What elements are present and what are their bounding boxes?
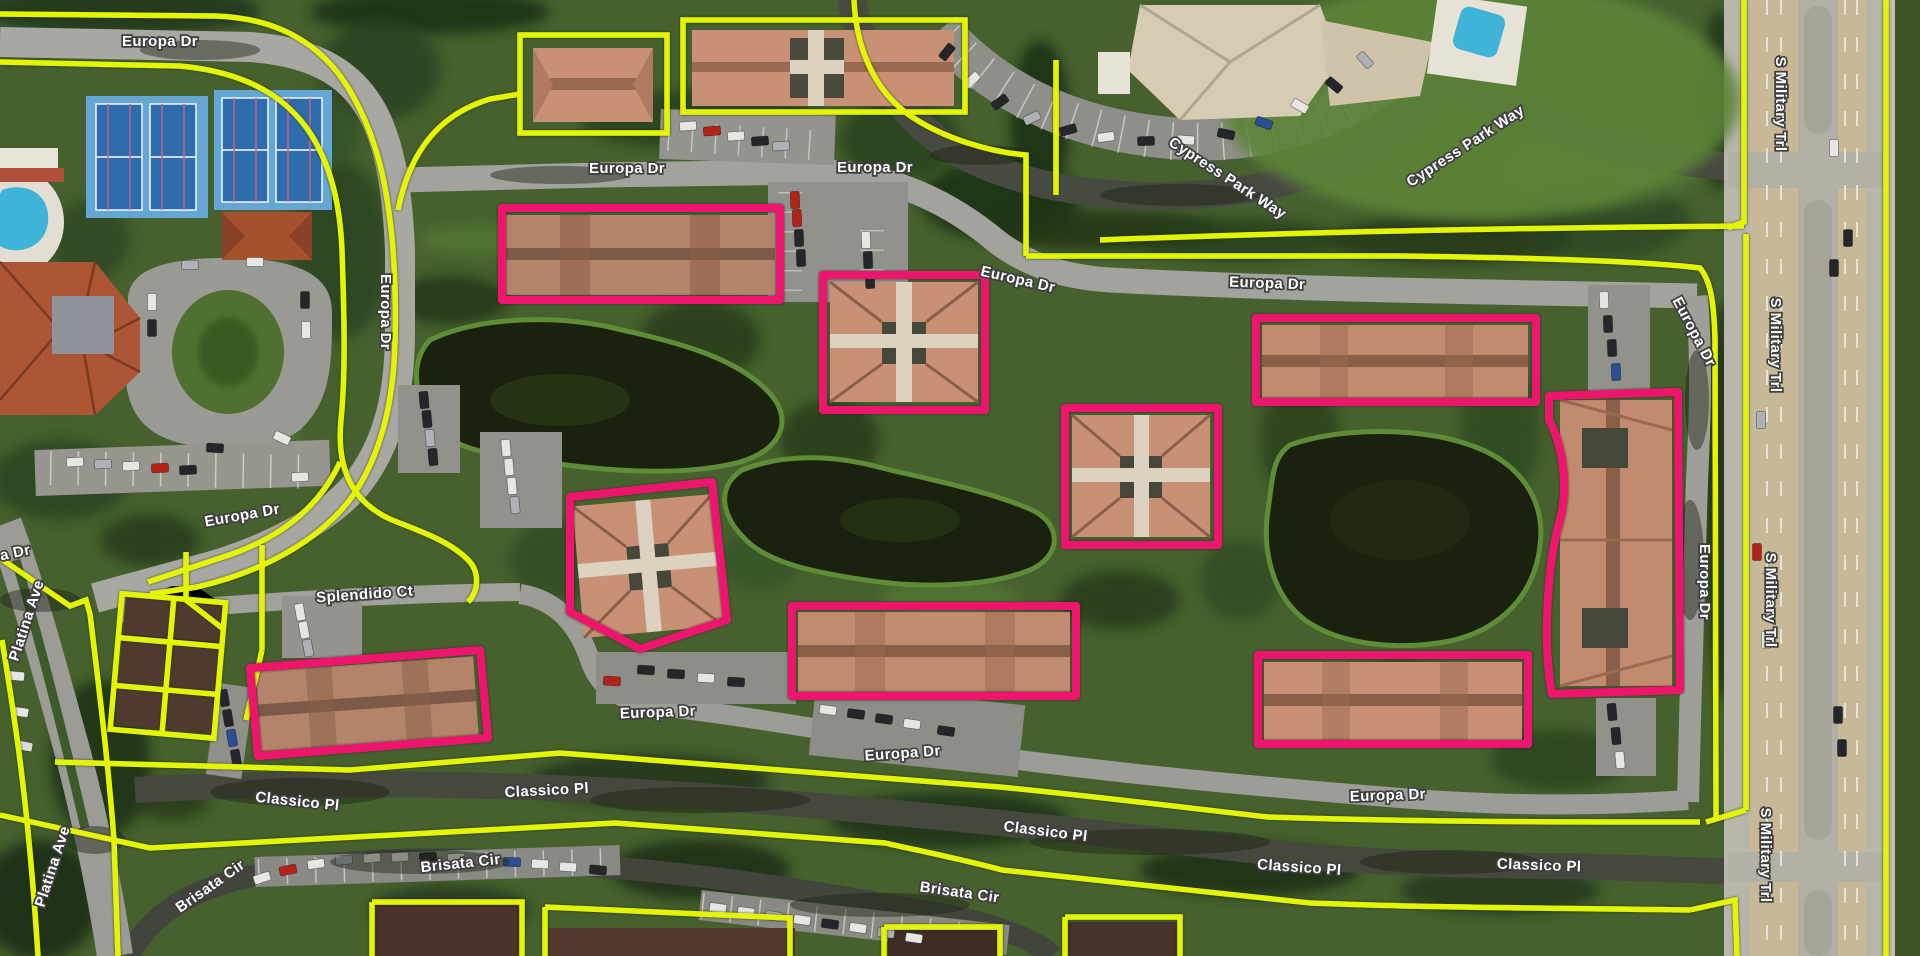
parked-car — [727, 677, 744, 687]
sidewalk — [1888, 0, 1895, 956]
parked-car — [903, 718, 921, 729]
parked-car — [703, 126, 721, 136]
parked-car — [679, 121, 697, 131]
parked-car — [863, 251, 873, 268]
parked-car — [861, 231, 871, 248]
parked-car — [307, 858, 325, 869]
street-label-europa-dr: Europa Dr — [1696, 544, 1713, 620]
parked-car — [94, 459, 111, 469]
building-roof-p8 — [1264, 662, 1522, 740]
parked-car — [793, 914, 811, 925]
parked-car — [504, 458, 514, 476]
parked-car — [796, 249, 806, 266]
parked-car — [603, 676, 620, 686]
street-label-s-military-trl: S Military Trl — [1762, 553, 1779, 648]
highway-s-military-trl — [1724, 0, 1920, 956]
parked-car — [501, 439, 511, 457]
parked-car — [751, 136, 769, 146]
parked-car — [425, 429, 435, 447]
parked-car — [206, 443, 223, 453]
parked-car — [875, 713, 893, 724]
street-label-europa-dr: Europa Dr — [1229, 274, 1306, 294]
parked-car — [1615, 751, 1625, 769]
building-roof-p6 — [1262, 325, 1528, 399]
building-roof-p4 — [798, 612, 1070, 692]
parking-central — [480, 432, 562, 528]
parked-car — [790, 191, 800, 208]
parking-south-a — [596, 652, 796, 704]
parked-car — [1607, 703, 1617, 721]
parked-car — [151, 463, 168, 473]
pond-shallow — [840, 498, 960, 542]
parked-car — [507, 477, 517, 495]
parked-car — [1834, 707, 1843, 724]
parked-car — [772, 141, 790, 151]
parked-car — [1137, 136, 1154, 146]
building-roof-bottom-2 — [548, 928, 795, 956]
parked-car — [559, 862, 577, 872]
parked-car — [302, 322, 311, 339]
parked-car — [1757, 412, 1766, 429]
building-roof-small-top — [533, 48, 653, 122]
parked-car — [1830, 260, 1839, 277]
aerial-map-canvas[interactable]: Europa Dr Europa Dr Europa Dr Europa Dr … — [0, 0, 1920, 956]
building-roof-p9 — [256, 656, 479, 751]
east-verge — [1895, 0, 1920, 956]
parked-car — [637, 665, 654, 675]
parked-car — [821, 918, 839, 929]
parking-southeast — [1596, 698, 1656, 776]
building-roof-bottom-4 — [1068, 922, 1178, 956]
street-label-europa-dr: Europa Dr — [377, 274, 394, 350]
parked-car — [1838, 740, 1847, 757]
building-roof-tile-strip — [0, 168, 64, 182]
parked-car — [1097, 131, 1115, 142]
street-label-s-military-trl: S Military Trl — [1772, 57, 1789, 152]
parked-car — [247, 258, 264, 267]
parked-car — [905, 932, 923, 943]
building-roof-white — [0, 148, 58, 170]
parked-car — [179, 465, 196, 475]
building-roof-p2 — [830, 282, 978, 402]
building-roof-p1 — [505, 215, 775, 295]
parked-car — [697, 673, 714, 683]
parked-car — [1753, 544, 1762, 561]
parked-car — [1830, 140, 1839, 157]
street-label-europa-dr: Europa Dr — [837, 159, 913, 176]
island-plantings — [198, 318, 258, 386]
parked-car — [667, 669, 684, 679]
pond-shallow — [490, 374, 630, 426]
parked-car — [422, 410, 432, 428]
street-label-classico-pl: Classico Pl — [1497, 856, 1582, 876]
parked-car — [849, 922, 867, 933]
parked-car — [122, 461, 139, 471]
parked-car — [148, 294, 157, 311]
parked-car — [589, 865, 607, 875]
parked-car — [727, 131, 745, 141]
parked-car — [148, 320, 157, 337]
pond-shallow — [1330, 480, 1470, 560]
parked-car — [794, 229, 804, 246]
parked-car — [531, 859, 548, 869]
parked-car — [428, 448, 438, 466]
building-roof-courtyard-top — [692, 30, 954, 106]
parked-car — [792, 209, 802, 226]
parked-car — [1844, 230, 1853, 247]
building-roof-p5 — [1072, 415, 1210, 537]
building-roof-bottom-1 — [372, 905, 520, 956]
highway-intersection-north — [1728, 152, 1890, 188]
parked-car — [66, 457, 83, 467]
parked-car — [1611, 727, 1621, 745]
building-roof-p3 — [573, 494, 724, 638]
street-label-europa-dr: Europa Dr — [122, 33, 198, 50]
parked-car — [847, 708, 865, 719]
parked-car — [291, 472, 308, 482]
building-roof-p7 — [1560, 400, 1672, 686]
street-label-europa-dr: Europa Dr — [1350, 786, 1427, 806]
parked-car — [1603, 315, 1613, 332]
parked-car — [1599, 291, 1609, 308]
parked-car — [1607, 339, 1617, 356]
street-label-europa-dr: Europa Dr — [620, 703, 697, 723]
aerial-map[interactable]: Europa Dr Europa Dr Europa Dr Europa Dr … — [0, 0, 1920, 956]
street-label-s-military-trl: S Military Trl — [1757, 808, 1774, 903]
parked-car — [1611, 363, 1621, 380]
parked-car — [301, 292, 310, 309]
building-roof-bottom-3 — [888, 930, 1000, 956]
street-label-europa-dr: Europa Dr — [589, 160, 665, 177]
parked-car — [819, 704, 837, 715]
parked-car — [937, 725, 955, 736]
highway-intersection-south — [1728, 852, 1890, 882]
parked-car — [419, 391, 429, 409]
parked-car — [182, 261, 199, 270]
street-label-s-military-trl: S Military Trl — [1767, 298, 1784, 393]
parked-car — [510, 496, 520, 514]
